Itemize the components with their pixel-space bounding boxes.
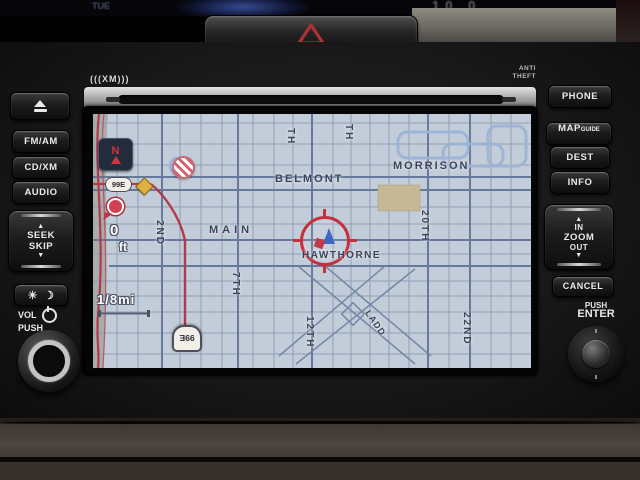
info-label: INFO [568,177,593,188]
zoom-in-label: IN [575,223,584,232]
cd-slot-notch-left [106,97,120,102]
street-label-morrison: MORRISON [393,160,470,172]
moon-icon: ☽ [44,289,54,302]
eject-icon [34,100,46,107]
eject-icon-bar [34,109,47,112]
compass-icon: N [98,138,133,171]
dest-label: DEST [566,152,593,163]
anti-theft-line2: THEFT [486,73,536,81]
street-label-7th: 7TH [230,272,241,297]
button-ridge [557,208,601,211]
upper-display-day: TUE [92,1,110,11]
map-scale-bar [98,310,150,317]
compass-north-label: N [112,146,120,156]
fm-am-button[interactable]: FM/AM [12,130,70,153]
skip-label: SKIP [29,241,53,252]
enter-joystick-knob[interactable] [568,326,624,382]
cd-slot-opening [118,95,504,104]
map-label: MAP [558,123,581,134]
knob-tick [595,329,597,333]
vehicle-marker-icon [314,238,326,250]
street-label-partial-th: TH [343,124,354,141]
zoom-label: ZOOM [564,232,595,243]
vol-label: VOL [18,310,37,320]
dashboard-trim-bottom [0,418,640,480]
xm-radio-label: (((XM))) [90,74,129,84]
dest-button[interactable]: DEST [550,146,610,169]
distance-value: 0 [110,222,118,239]
enter-knob-center[interactable] [582,340,610,368]
zoom-button[interactable]: ▲ IN ZOOM OUT ▼ [544,204,614,270]
knob-tick [595,375,597,379]
street-label-20th: 20TH [419,210,430,242]
audio-button[interactable]: AUDIO [12,181,70,204]
phone-button[interactable]: PHONE [548,85,612,108]
nav-screen-bezel: N 99E 0 ft 1/8mi 99E MORRISON [82,106,538,376]
button-ridge [557,263,601,266]
seek-label: SEEK [27,230,55,241]
sun-icon: ☀ [28,289,38,302]
zoom-out-icon: ▼ [575,252,582,259]
button-ridge [21,214,61,217]
fm-am-label: FM/AM [24,136,58,147]
dashboard-trim-top [412,8,640,42]
car-infotainment-unit: TUE 10 0 (((XM))) ANTI THEFT [0,0,640,480]
street-label-main: MAIN [209,224,253,236]
compass-north-arrow [111,156,121,164]
cd-xm-button[interactable]: CD/XM [12,156,70,179]
volume-knob-ring [28,340,70,382]
poi-marker-tail [103,212,112,221]
volume-power-knob[interactable] [18,330,80,392]
map-guide-button[interactable]: MAP GUIDE [546,122,612,145]
map-scale-label: 1/8mi [97,292,135,307]
seek-up-icon: ▲ [37,223,44,230]
anti-theft-label: ANTI THEFT [486,65,536,81]
push-enter-label-group: PUSH ENTER [566,301,626,319]
seek-down-icon: ▼ [37,252,44,259]
trim-band [0,462,640,480]
anti-theft-line1: ANTI [486,65,536,73]
enter-label: ENTER [577,308,614,320]
distance-unit: ft [119,240,127,254]
street-label-12th: 12TH [304,316,315,348]
map-guide-sublabel: GUIDE [581,127,600,133]
zoom-in-icon: ▲ [575,216,582,223]
eject-button[interactable] [10,92,70,120]
cursor-crosshair [323,264,326,273]
brightness-button[interactable]: ☀ ☽ [14,284,68,306]
cursor-crosshair [323,209,326,218]
cd-xm-label: CD/XM [24,162,57,173]
power-icon [42,308,57,323]
landmark-block [378,185,420,211]
zoom-out-label: OUT [570,243,588,252]
street-label-belmont: BELMONT [275,173,343,185]
button-ridge [21,265,61,268]
restriction-poi-icon [172,156,195,179]
street-label-2nd: 2ND [154,220,165,246]
seek-skip-button[interactable]: ▲ SEEK SKIP ▼ [8,210,74,272]
street-label-partial-th2: TH [285,128,296,145]
cancel-label: CANCEL [563,281,604,292]
audio-label: AUDIO [24,187,57,198]
cursor-crosshair [293,239,302,242]
cd-slot-notch-right [502,97,516,102]
phone-label: PHONE [562,91,598,102]
info-button[interactable]: INFO [550,171,610,194]
route-shield-99e-lower: 99E [172,325,202,352]
route-shield-99e-upper: 99E [105,177,132,192]
nav-map-display: N 99E 0 ft 1/8mi 99E MORRISON [93,114,531,368]
street-label-hawthorne: HAWTHORNE [302,250,381,261]
dashboard-trim-corner [616,0,640,42]
street-label-22nd: 22ND [461,312,472,346]
cancel-button[interactable]: CANCEL [552,276,614,297]
cursor-crosshair [348,239,357,242]
